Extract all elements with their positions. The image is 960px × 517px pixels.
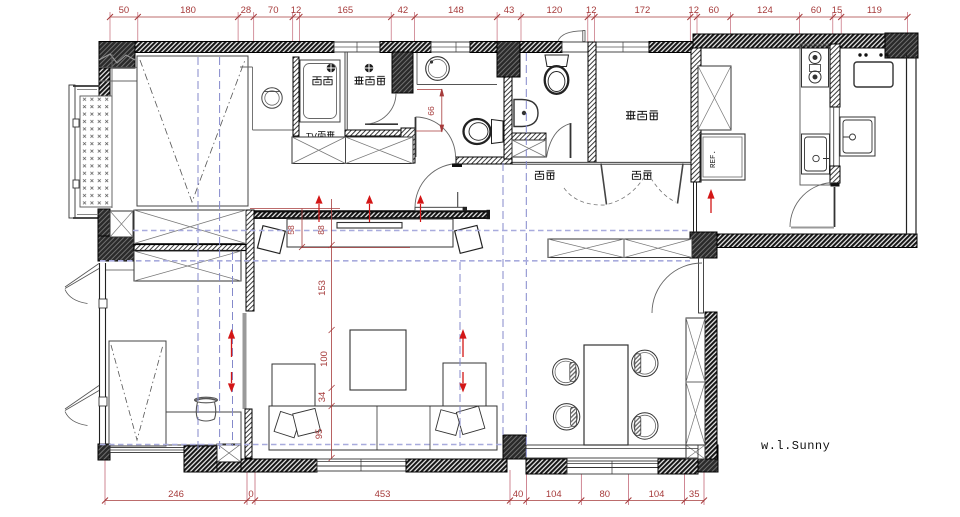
svg-text:104: 104	[546, 489, 562, 500]
svg-text:172: 172	[634, 5, 650, 16]
svg-text:60: 60	[811, 5, 822, 16]
svg-text:165: 165	[337, 5, 353, 16]
svg-text:12: 12	[586, 5, 597, 16]
svg-text:28: 28	[241, 5, 252, 16]
svg-text:70: 70	[268, 5, 279, 16]
svg-text:80: 80	[600, 489, 611, 500]
svg-text:43: 43	[504, 5, 515, 16]
svg-text:15: 15	[832, 5, 843, 16]
svg-text:REF.: REF.	[710, 150, 718, 168]
svg-text:153: 153	[317, 280, 328, 296]
svg-text:60: 60	[708, 5, 719, 16]
svg-text:88: 88	[316, 225, 326, 235]
svg-text:35: 35	[689, 489, 700, 500]
svg-text:66: 66	[426, 106, 436, 116]
svg-text:453: 453	[375, 489, 391, 500]
svg-text:0: 0	[248, 489, 253, 500]
svg-text:120: 120	[546, 5, 562, 16]
svg-text:95: 95	[314, 429, 325, 440]
svg-text:180: 180	[180, 5, 196, 16]
svg-text:34: 34	[317, 392, 328, 403]
svg-text:42: 42	[398, 5, 409, 16]
svg-text:124: 124	[757, 5, 773, 16]
svg-text:40: 40	[513, 489, 524, 500]
svg-text:58: 58	[286, 225, 296, 235]
svg-text:w.l.Sunny: w.l.Sunny	[761, 439, 830, 453]
svg-text:50: 50	[119, 5, 130, 16]
svg-text:148: 148	[448, 5, 464, 16]
svg-text:246: 246	[168, 489, 184, 500]
svg-text:12: 12	[291, 5, 302, 16]
svg-text:119: 119	[867, 5, 882, 16]
svg-text:12: 12	[688, 5, 699, 16]
svg-text:104: 104	[649, 489, 665, 500]
svg-text:100: 100	[319, 351, 330, 367]
